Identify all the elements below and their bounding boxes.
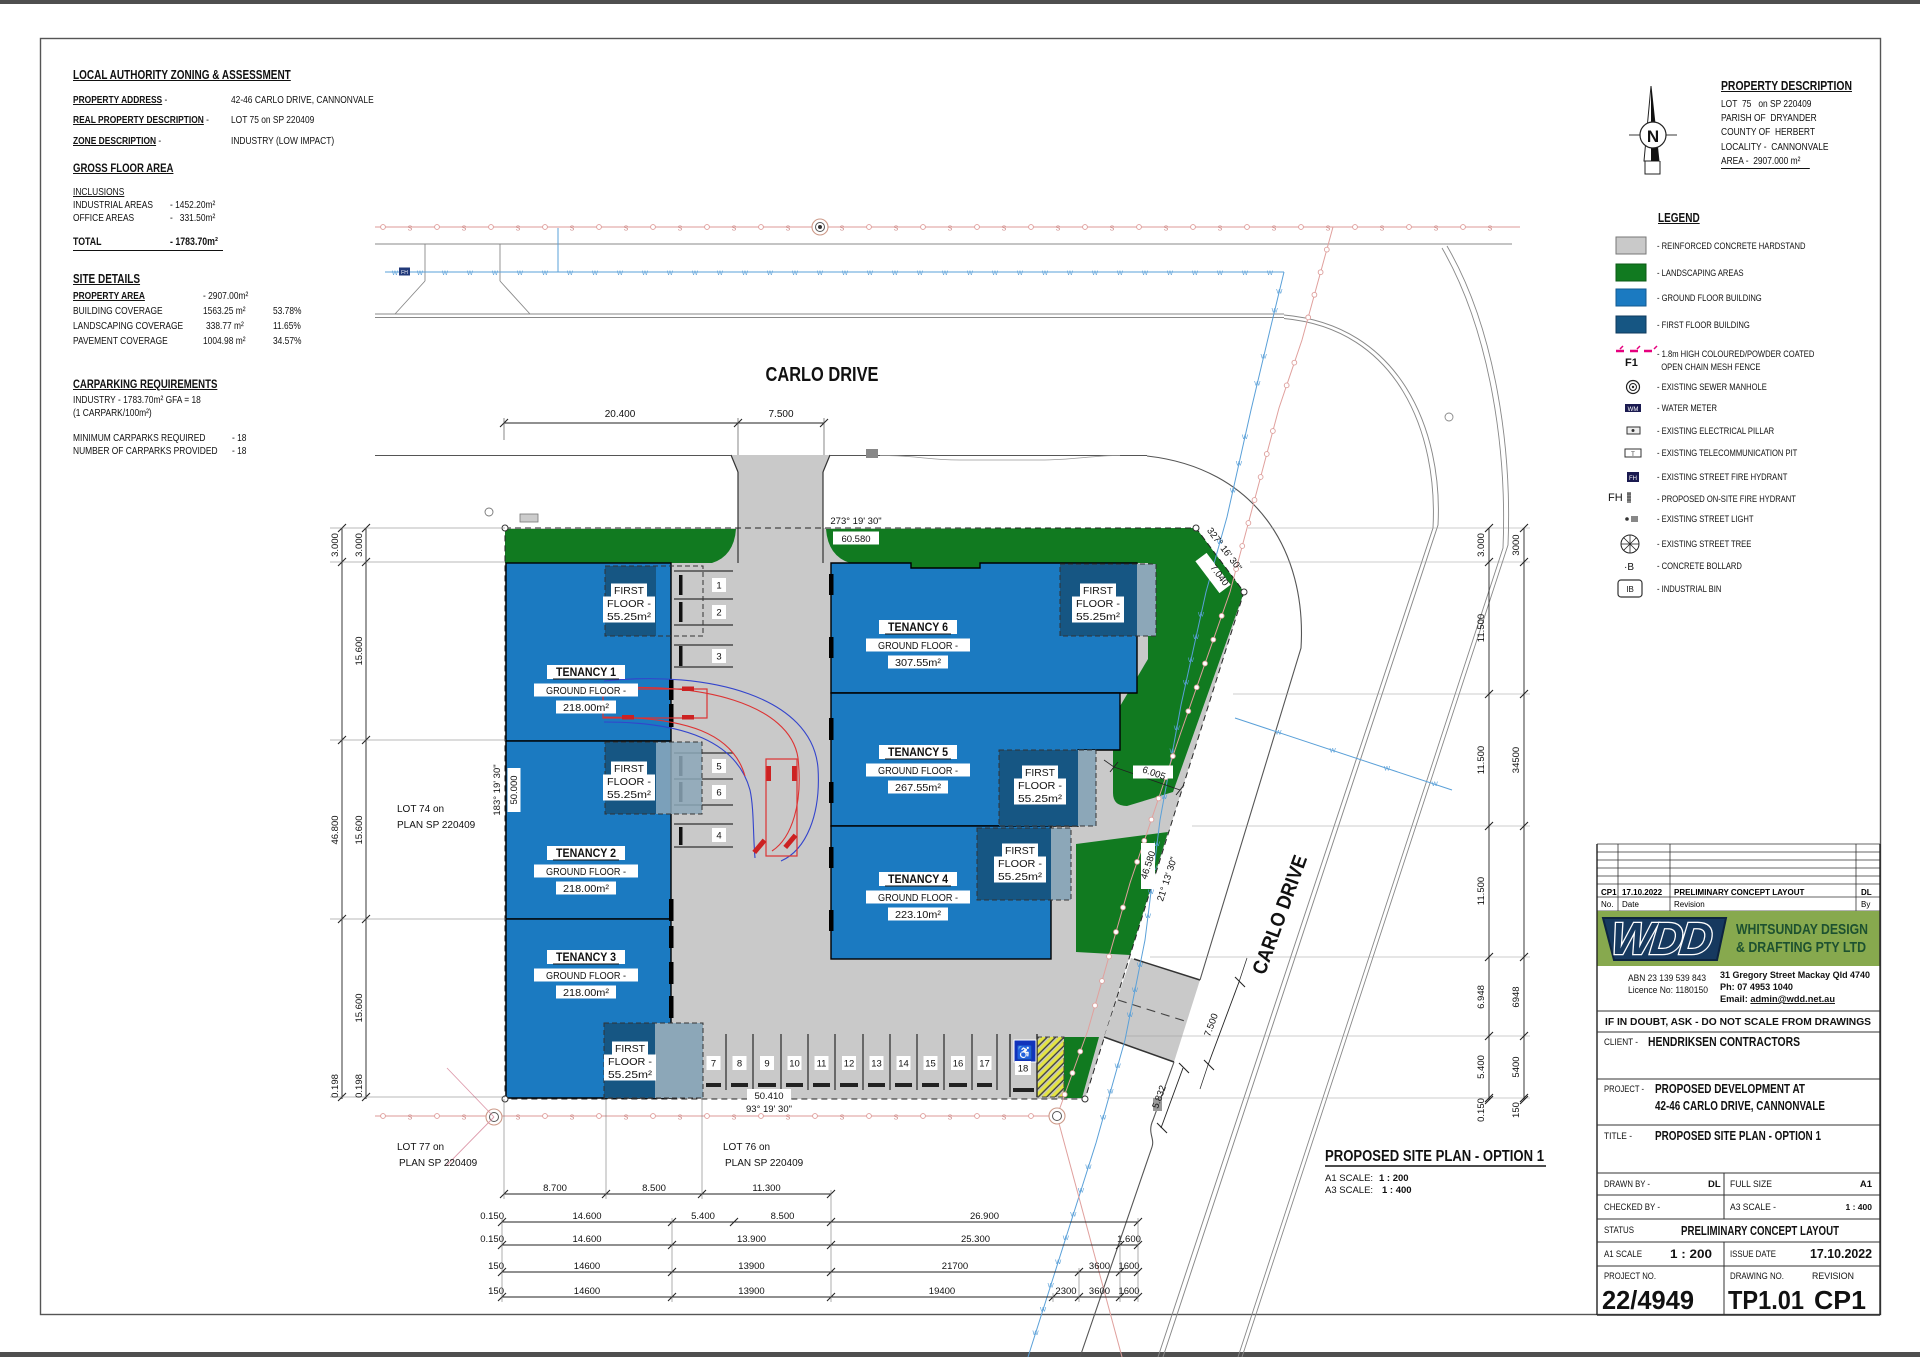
svg-text:TP1.01: TP1.01 (1728, 1285, 1804, 1315)
svg-text:15.600: 15.600 (354, 815, 365, 844)
svg-text:FIRST: FIRST (614, 763, 645, 775)
svg-text:12: 12 (844, 1059, 855, 1070)
svg-text:W: W (792, 270, 799, 277)
svg-text:50.410: 50.410 (754, 1091, 783, 1102)
svg-text:FLOOR -: FLOOR - (607, 776, 652, 788)
svg-text:W: W (1198, 612, 1205, 619)
svg-text:S: S (1110, 226, 1115, 233)
svg-text:W: W (967, 270, 974, 277)
svg-text:26.900: 26.900 (970, 1211, 999, 1222)
svg-text:FH: FH (1629, 476, 1637, 482)
svg-text:7.500: 7.500 (768, 409, 793, 420)
svg-text:W: W (1070, 1211, 1077, 1218)
svg-text:LOT 76 on: LOT 76 on (723, 1142, 770, 1153)
svg-text:S: S (786, 226, 791, 233)
svg-text:LOT 74 on: LOT 74 on (397, 804, 444, 815)
svg-text:By: By (1861, 900, 1870, 909)
svg-text:14600: 14600 (574, 1286, 600, 1297)
svg-text:15: 15 (925, 1059, 936, 1070)
svg-text:PRELIMINARY CONCEPT LAYOUT: PRELIMINARY CONCEPT LAYOUT (1681, 1224, 1839, 1238)
svg-text:W: W (892, 270, 899, 277)
svg-text:22/4949: 22/4949 (1602, 1285, 1694, 1315)
svg-text:3: 3 (716, 652, 721, 663)
svg-text:W: W (1217, 270, 1224, 277)
svg-text:Date: Date (1622, 900, 1639, 909)
svg-text:W: W (667, 270, 674, 277)
svg-text:FIRST: FIRST (1005, 845, 1036, 857)
svg-text:FLOOR -: FLOOR - (1018, 780, 1063, 792)
svg-text:5.400: 5.400 (1476, 1055, 1487, 1079)
svg-text:1600: 1600 (1118, 1261, 1139, 1272)
svg-text:19400: 19400 (929, 1286, 955, 1297)
svg-text:13: 13 (871, 1059, 882, 1070)
svg-text:W: W (542, 270, 549, 277)
svg-text:W: W (1432, 781, 1439, 788)
svg-text:GROUND FLOOR -: GROUND FLOOR - (546, 970, 626, 982)
svg-text:7.500: 7.500 (1202, 1012, 1220, 1038)
svg-text:W: W (1092, 270, 1099, 277)
svg-text:S: S (948, 1115, 953, 1122)
svg-text:S: S (1002, 226, 1007, 233)
svg-text:DRAWN BY -: DRAWN BY - (1604, 1179, 1650, 1189)
svg-text:S: S (408, 1115, 413, 1122)
svg-text:W: W (1272, 308, 1279, 315)
svg-text:W: W (442, 270, 449, 277)
svg-text:W: W (942, 270, 949, 277)
svg-text:W: W (1384, 765, 1391, 772)
svg-text:S: S (462, 1115, 467, 1122)
svg-text:S: S (732, 226, 737, 233)
svg-text:W: W (1063, 1235, 1070, 1242)
svg-text:W: W (1174, 725, 1181, 732)
svg-text:CHECKED BY -: CHECKED BY - (1604, 1202, 1660, 1212)
svg-text:A1: A1 (1860, 1179, 1873, 1190)
svg-text:W: W (1067, 270, 1074, 277)
svg-text:WDD: WDD (1608, 913, 1714, 964)
svg-text:TENANCY 1: TENANCY 1 (556, 667, 617, 679)
svg-text:11.300: 11.300 (752, 1183, 780, 1194)
svg-text:W: W (1242, 270, 1249, 277)
svg-text:3.000: 3.000 (330, 533, 341, 557)
svg-text:W: W (1042, 270, 1049, 277)
svg-text:2: 2 (716, 608, 721, 619)
svg-text:W: W (1330, 747, 1337, 754)
svg-text:150: 150 (488, 1261, 504, 1272)
svg-text:W: W (1267, 270, 1274, 277)
svg-text:55.25m²: 55.25m² (1076, 611, 1121, 623)
svg-text:N: N (1647, 127, 1659, 146)
svg-text:TENANCY 6: TENANCY 6 (888, 622, 948, 634)
svg-text:CARLO DRIVE: CARLO DRIVE (1249, 852, 1312, 977)
svg-text:7: 7 (711, 1059, 716, 1070)
svg-text:W: W (1261, 354, 1268, 361)
svg-text:FIRST: FIRST (615, 1043, 646, 1055)
svg-text:PROPOSED DEVELOPMENT AT: PROPOSED DEVELOPMENT AT (1655, 1082, 1805, 1096)
svg-text:S: S (894, 226, 899, 233)
svg-text:150: 150 (1511, 1102, 1522, 1118)
svg-text:DL: DL (1708, 1179, 1721, 1190)
svg-text:W: W (1040, 1306, 1047, 1313)
svg-text:1 : 200: 1 : 200 (1670, 1247, 1712, 1261)
svg-text:LOT 77 on: LOT 77 on (397, 1142, 444, 1153)
svg-text:DL: DL (1861, 888, 1872, 897)
svg-text:55.25m²: 55.25m² (608, 1069, 653, 1081)
svg-text:5.832: 5.832 (1150, 1084, 1168, 1110)
svg-text:W: W (592, 270, 599, 277)
svg-text:13.900: 13.900 (737, 1234, 766, 1245)
svg-text:S: S (1434, 226, 1439, 233)
svg-text:FIRST: FIRST (1025, 767, 1056, 779)
svg-text:Email: admin@wdd.net.au: Email: admin@wdd.net.au (1720, 994, 1835, 1005)
svg-text:S: S (624, 1115, 629, 1122)
svg-text:S: S (948, 226, 953, 233)
svg-text:T: T (1631, 452, 1635, 458)
svg-text:307.55m²: 307.55m² (895, 657, 942, 669)
svg-text:W: W (567, 270, 574, 277)
svg-text:218.00m²: 218.00m² (563, 987, 610, 999)
svg-text:A3 SCALE -: A3 SCALE - (1730, 1202, 1776, 1212)
svg-text:S: S (678, 1115, 683, 1122)
svg-text:·B: ·B (1624, 562, 1634, 573)
svg-text:11: 11 (817, 1059, 827, 1070)
svg-text:42-46 CARLO DRIVE, CANNONVALE: 42-46 CARLO DRIVE, CANNONVALE (1655, 1099, 1825, 1113)
svg-text:A3 SCALE:: A3 SCALE: (1325, 1185, 1373, 1196)
svg-text:6948: 6948 (1511, 986, 1522, 1007)
svg-text:PLAN SP 220409: PLAN SP 220409 (399, 1158, 478, 1169)
svg-text:S: S (624, 226, 629, 233)
svg-text:0.150: 0.150 (1476, 1098, 1487, 1122)
svg-text:8.500: 8.500 (771, 1211, 795, 1222)
svg-text:♿: ♿ (1017, 1045, 1033, 1060)
svg-text:IF IN DOUBT, ASK - DO NOT SCAL: IF IN DOUBT, ASK - DO NOT SCALE FROM DRA… (1605, 1016, 1871, 1028)
svg-text:Licence No: 1180150: Licence No: 1180150 (1628, 985, 1708, 995)
svg-text:223.10m²: 223.10m² (895, 909, 942, 921)
svg-text:25.300: 25.300 (961, 1234, 990, 1245)
svg-text:S: S (1380, 226, 1385, 233)
svg-text:S: S (516, 1115, 521, 1122)
svg-text:17.10.2022: 17.10.2022 (1622, 888, 1663, 897)
svg-text:17: 17 (979, 1059, 990, 1070)
svg-text:W: W (1276, 288, 1283, 295)
svg-text:W: W (417, 270, 424, 277)
svg-text:55.25m²: 55.25m² (607, 611, 652, 623)
svg-text:60.580: 60.580 (841, 534, 870, 545)
svg-text:1 : 400: 1 : 400 (1382, 1185, 1412, 1196)
svg-text:W: W (1100, 1114, 1107, 1121)
svg-text:3.000: 3.000 (354, 533, 365, 557)
svg-text:3600: 3600 (1089, 1261, 1110, 1272)
svg-text:8.700: 8.700 (543, 1183, 567, 1194)
svg-text:46.800: 46.800 (330, 815, 341, 844)
svg-text:S: S (408, 226, 413, 233)
svg-text:183° 19' 30": 183° 19' 30" (492, 764, 503, 815)
svg-text:1: 1 (716, 581, 721, 592)
svg-text:W: W (1048, 1283, 1055, 1290)
svg-text:93° 19' 30": 93° 19' 30" (746, 1104, 792, 1115)
svg-text:W: W (1078, 1188, 1085, 1195)
svg-text:S: S (462, 226, 467, 233)
svg-text:34500: 34500 (1511, 747, 1522, 773)
svg-text:S: S (786, 1115, 791, 1122)
svg-text:W: W (1085, 1164, 1092, 1171)
svg-text:14600: 14600 (574, 1261, 600, 1272)
svg-text:16: 16 (953, 1059, 964, 1070)
svg-text:9: 9 (764, 1059, 769, 1070)
svg-text:W: W (392, 270, 399, 277)
svg-text:S: S (1164, 226, 1169, 233)
svg-text:W: W (1132, 987, 1139, 994)
svg-text:5400: 5400 (1511, 1056, 1522, 1077)
svg-text:W: W (1236, 461, 1243, 468)
svg-text:TENANCY 5: TENANCY 5 (888, 747, 949, 759)
svg-text:PLAN SP 220409: PLAN SP 220409 (725, 1158, 804, 1169)
svg-text:W: W (1107, 1089, 1114, 1096)
svg-text:W: W (1188, 657, 1195, 664)
svg-text:ABN 23 139 539 843: ABN 23 139 539 843 (1628, 973, 1706, 983)
svg-text:W: W (817, 270, 824, 277)
svg-text:GROUND FLOOR -: GROUND FLOOR - (878, 765, 958, 777)
svg-text:273° 19' 30": 273° 19' 30" (830, 516, 881, 527)
svg-text:17.10.2022: 17.10.2022 (1810, 1247, 1872, 1261)
svg-text:55.25m²: 55.25m² (607, 789, 652, 801)
svg-text:No.: No. (1601, 900, 1613, 909)
svg-text:GROUND FLOOR -: GROUND FLOOR - (546, 685, 626, 697)
svg-text:55.25m²: 55.25m² (998, 871, 1043, 883)
svg-text:PROJECT NO.: PROJECT NO. (1604, 1271, 1656, 1282)
svg-text:FH: FH (401, 270, 408, 276)
svg-text:FIRST: FIRST (614, 585, 645, 597)
svg-text:S: S (678, 226, 683, 233)
svg-text:FLOOR -: FLOOR - (998, 858, 1043, 870)
svg-text:Revision: Revision (1674, 900, 1705, 909)
svg-text:PRELIMINARY CONCEPT LAYOUT: PRELIMINARY CONCEPT LAYOUT (1674, 888, 1804, 897)
svg-text:14: 14 (898, 1059, 909, 1070)
svg-text:S: S (840, 226, 845, 233)
svg-text:W: W (917, 270, 924, 277)
svg-text:10: 10 (789, 1059, 800, 1070)
svg-text:W: W (1254, 380, 1261, 387)
svg-text:W: W (867, 270, 874, 277)
svg-text:0.150: 0.150 (480, 1211, 504, 1222)
svg-text:W: W (1127, 1012, 1134, 1019)
svg-text:GROUND FLOOR -: GROUND FLOOR - (546, 866, 626, 878)
svg-text:150: 150 (488, 1286, 504, 1297)
svg-text:PLAN SP 220409: PLAN SP 220409 (397, 820, 476, 831)
svg-text:CP1: CP1 (1814, 1285, 1866, 1315)
svg-text:TENANCY 2: TENANCY 2 (556, 848, 616, 860)
svg-text:5: 5 (716, 762, 721, 773)
svg-text:W: W (767, 270, 774, 277)
svg-text:FLOOR -: FLOOR - (608, 1056, 653, 1068)
svg-text:PROPOSED SITE PLAN - OPTION 1: PROPOSED SITE PLAN - OPTION 1 (1655, 1129, 1821, 1143)
svg-text:13900: 13900 (738, 1286, 764, 1297)
svg-text:W: W (1115, 1063, 1122, 1070)
svg-text:W: W (617, 270, 624, 277)
svg-text:W: W (1148, 889, 1155, 896)
svg-text:GROUND FLOOR -: GROUND FLOOR - (878, 892, 958, 904)
svg-text:W: W (1192, 270, 1199, 277)
svg-text:6: 6 (716, 788, 721, 799)
svg-text:1.600: 1.600 (1117, 1234, 1141, 1245)
svg-text:S: S (1218, 226, 1223, 233)
svg-text:0.198: 0.198 (354, 1074, 365, 1098)
svg-text:13900: 13900 (738, 1261, 764, 1272)
svg-text:11.500: 11.500 (1476, 614, 1487, 642)
svg-text:IB: IB (1626, 585, 1634, 594)
svg-text:18: 18 (1018, 1064, 1029, 1075)
svg-text:W: W (1137, 962, 1144, 969)
svg-text:W: W (1193, 634, 1200, 641)
svg-text:S: S (516, 226, 521, 233)
svg-text:WM: WM (1628, 407, 1639, 413)
svg-text:W: W (1017, 270, 1024, 277)
svg-text:W: W (1167, 270, 1174, 277)
svg-text:W: W (1032, 1330, 1039, 1337)
svg-text:S: S (1488, 226, 1493, 233)
svg-text:DRAWING NO.: DRAWING NO. (1730, 1271, 1784, 1282)
svg-text:S: S (1002, 1115, 1007, 1122)
svg-text:CLIENT -: CLIENT - (1604, 1037, 1638, 1047)
svg-text:S: S (1326, 226, 1331, 233)
svg-text:W: W (992, 270, 999, 277)
svg-text:TENANCY 4: TENANCY 4 (888, 874, 949, 886)
svg-text:W: W (717, 270, 724, 277)
svg-text:55.25m²: 55.25m² (1018, 793, 1063, 805)
svg-text:FLOOR -: FLOOR - (607, 598, 652, 610)
svg-text:S: S (894, 1115, 899, 1122)
svg-text:& DRAFTING PTY LTD: & DRAFTING PTY LTD (1736, 939, 1866, 956)
svg-text:W: W (1142, 270, 1149, 277)
svg-text:S: S (570, 1115, 575, 1122)
svg-text:5.400: 5.400 (691, 1211, 715, 1222)
svg-text:4: 4 (716, 831, 721, 842)
svg-text:FULL SIZE: FULL SIZE (1730, 1179, 1772, 1189)
svg-text:W: W (1230, 487, 1237, 494)
svg-text:TITLE -: TITLE - (1604, 1131, 1632, 1141)
svg-text:W: W (517, 270, 524, 277)
svg-text:6.948: 6.948 (1476, 985, 1487, 1009)
svg-text:W: W (1161, 794, 1168, 801)
svg-text:GROUND FLOOR -: GROUND FLOOR - (878, 640, 958, 652)
svg-text:S: S (732, 1115, 737, 1122)
svg-text:3600: 3600 (1089, 1286, 1110, 1297)
svg-text:3.000: 3.000 (1476, 533, 1487, 557)
svg-text:W: W (1242, 434, 1249, 441)
svg-text:STATUS: STATUS (1604, 1225, 1634, 1235)
svg-text:S: S (570, 226, 575, 233)
svg-text:W: W (642, 270, 649, 277)
svg-text:W: W (692, 270, 699, 277)
svg-text:1600: 1600 (1118, 1286, 1139, 1297)
svg-text:A1 SCALE: A1 SCALE (1604, 1249, 1642, 1259)
svg-text:Ph: 07 4953 1040: Ph: 07 4953 1040 (1720, 982, 1793, 993)
svg-text:W: W (1275, 729, 1282, 736)
svg-text:14.600: 14.600 (572, 1211, 601, 1222)
svg-text:1 : 400: 1 : 400 (1846, 1202, 1873, 1212)
svg-text:267.55m²: 267.55m² (895, 782, 942, 794)
svg-text:21700: 21700 (942, 1261, 968, 1272)
svg-text:31 Gregory Street Mackay Qld 4: 31 Gregory Street Mackay Qld 4740 (1720, 970, 1870, 981)
svg-text:S: S (1272, 226, 1277, 233)
svg-text:15.600: 15.600 (354, 636, 365, 665)
svg-text:W: W (742, 270, 749, 277)
svg-text:F1: F1 (1625, 357, 1638, 369)
svg-text:0.198: 0.198 (330, 1074, 341, 1098)
svg-text:218.00m²: 218.00m² (563, 702, 610, 714)
svg-text:50.000: 50.000 (509, 775, 520, 804)
svg-text:1 : 200: 1 : 200 (1379, 1173, 1409, 1184)
svg-text:8.500: 8.500 (642, 1183, 666, 1194)
svg-text:HENDRIKSEN CONTRACTORS: HENDRIKSEN CONTRACTORS (1648, 1035, 1800, 1049)
svg-text:8: 8 (737, 1059, 742, 1070)
svg-text:15.600: 15.600 (354, 993, 365, 1022)
svg-text:W: W (842, 270, 849, 277)
svg-text:CARLO DRIVE: CARLO DRIVE (766, 364, 879, 386)
svg-text:REVISION: REVISION (1812, 1271, 1854, 1282)
svg-text:W: W (1055, 1259, 1062, 1266)
svg-text:W: W (467, 270, 474, 277)
svg-text:PROJECT -: PROJECT - (1604, 1084, 1644, 1094)
svg-text:W: W (1183, 679, 1190, 686)
svg-text:3000: 3000 (1511, 534, 1522, 555)
svg-text:11.500: 11.500 (1476, 746, 1487, 774)
svg-text:S: S (1056, 226, 1061, 233)
svg-text:FIRST: FIRST (1083, 585, 1114, 597)
svg-text:FLOOR -: FLOOR - (1076, 598, 1121, 610)
svg-text:S: S (840, 1115, 845, 1122)
svg-text:0.150: 0.150 (480, 1234, 504, 1245)
svg-text:TENANCY 3: TENANCY 3 (556, 952, 616, 964)
svg-text:CP1: CP1 (1601, 888, 1617, 897)
svg-text:W: W (492, 270, 499, 277)
svg-text:WHITSUNDAY DESIGN: WHITSUNDAY DESIGN (1736, 921, 1868, 938)
svg-text:14.600: 14.600 (572, 1234, 601, 1245)
svg-text:2300: 2300 (1055, 1286, 1076, 1297)
svg-text:PROPOSED SITE PLAN - OPTION 1: PROPOSED SITE PLAN - OPTION 1 (1325, 1148, 1544, 1165)
svg-text:20.400: 20.400 (605, 409, 636, 420)
svg-text:W: W (1117, 270, 1124, 277)
svg-text:A1 SCALE:: A1 SCALE: (1325, 1173, 1373, 1184)
svg-text:W: W (1145, 913, 1152, 920)
svg-text:11.500: 11.500 (1476, 877, 1487, 905)
svg-text:FH: FH (1608, 492, 1623, 504)
svg-text:218.00m²: 218.00m² (563, 883, 610, 895)
svg-text:ISSUE DATE: ISSUE DATE (1730, 1249, 1776, 1259)
